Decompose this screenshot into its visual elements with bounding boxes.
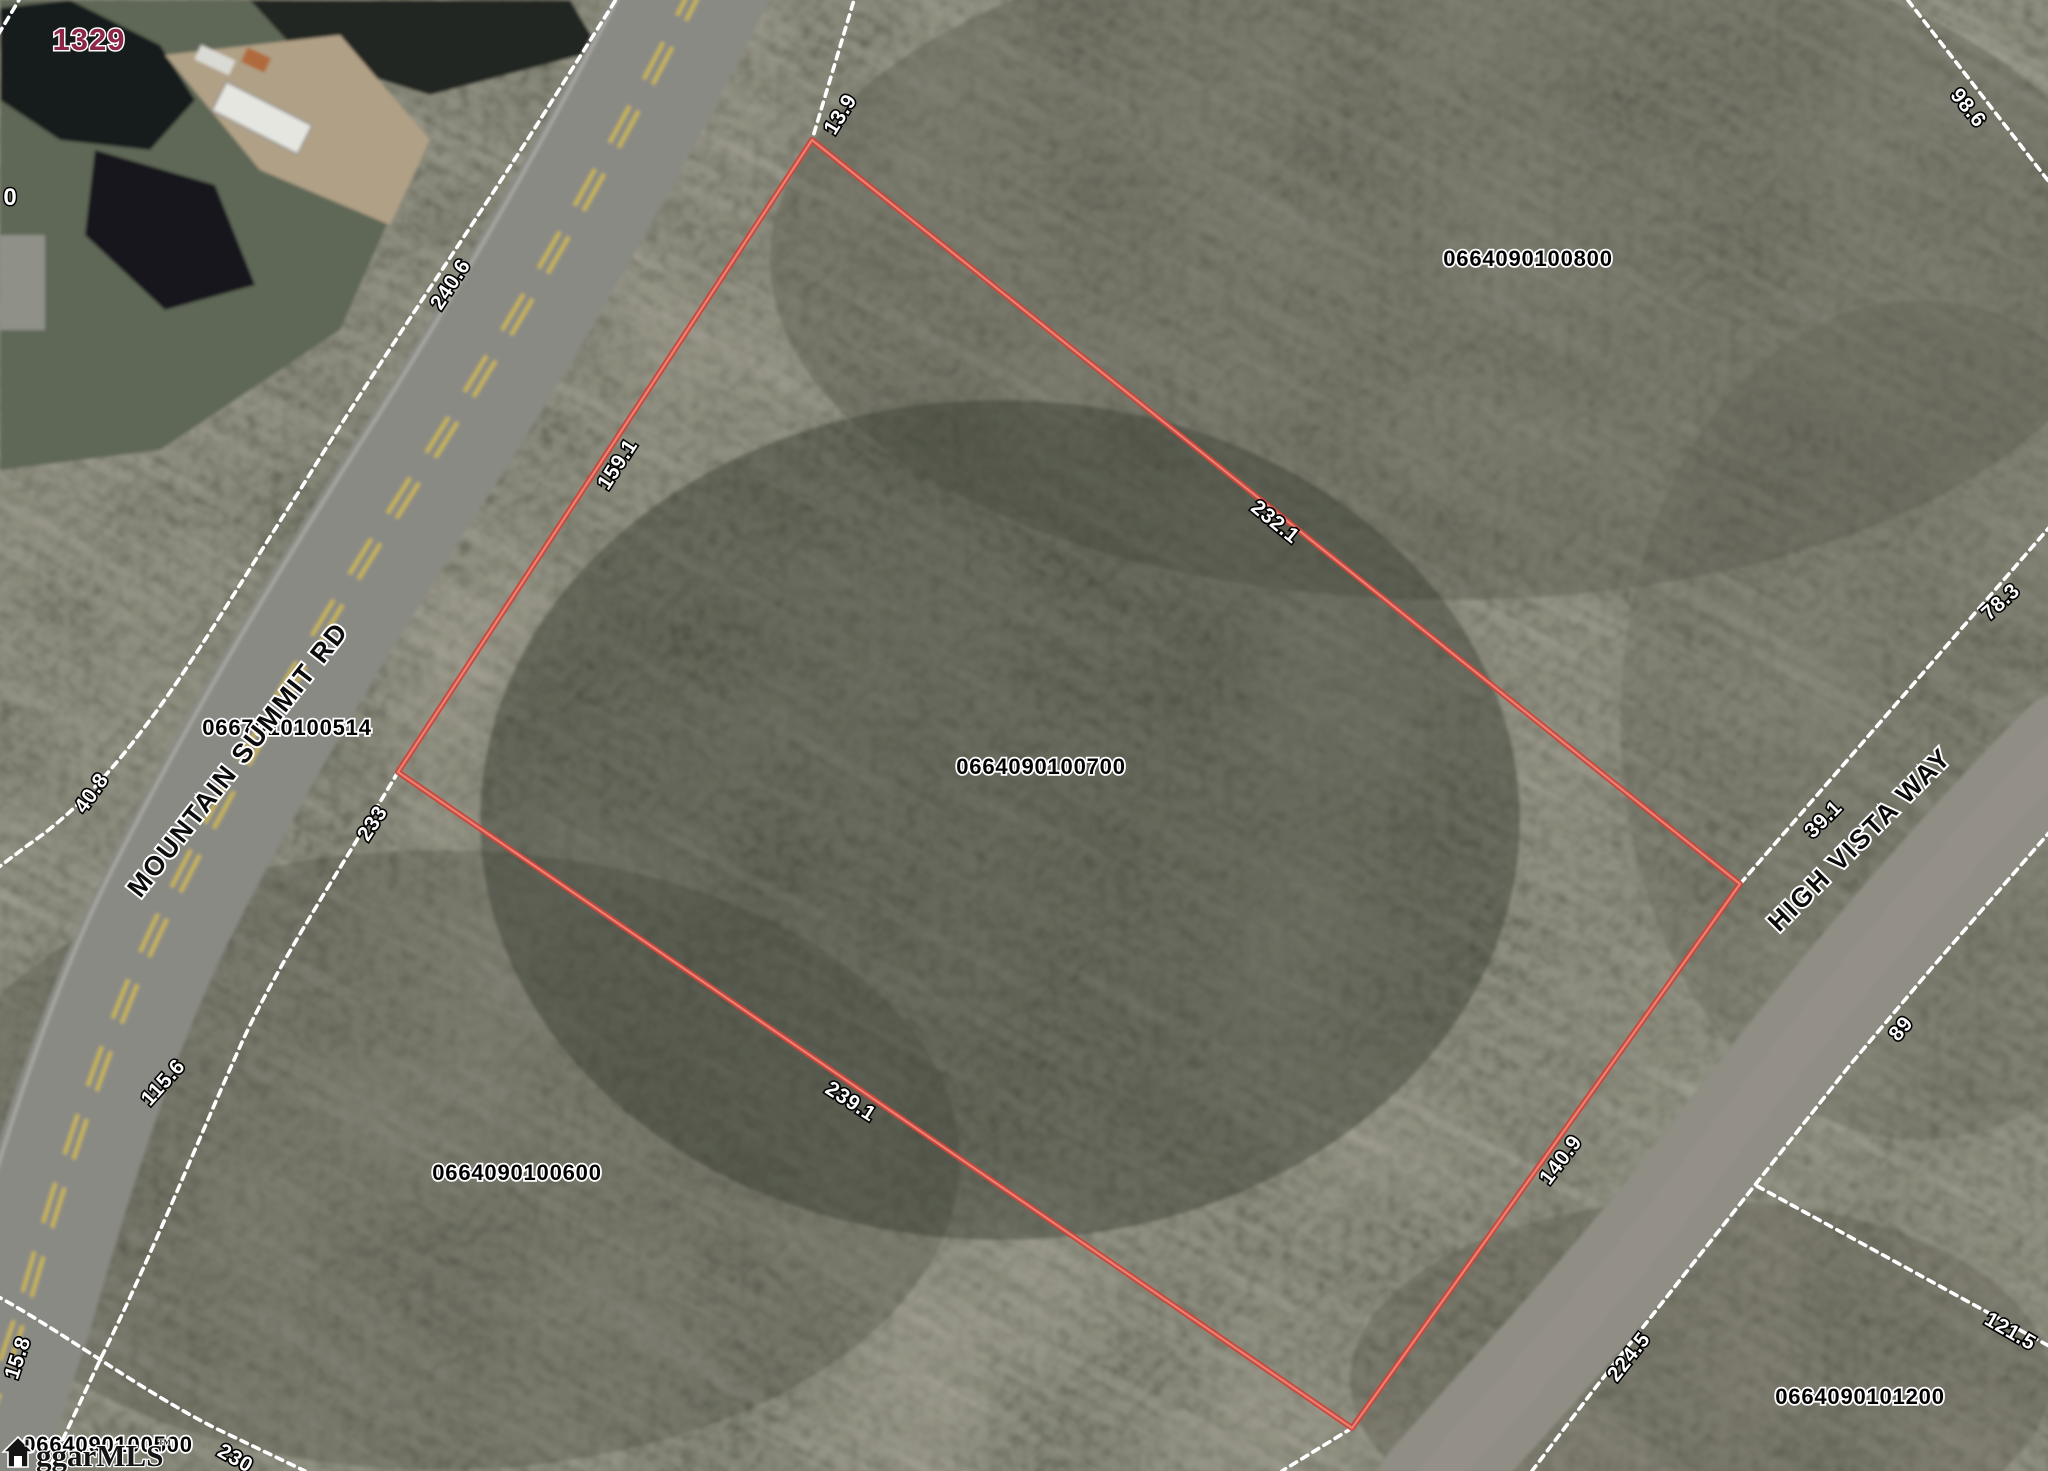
parcel-id-0664090100800: 0664090100800 [1443,246,1612,271]
parcel-map[interactable]: 1329 0 0664090100800 0664090100700 06640… [0,0,2048,1471]
parcel-id-0664090101200: 0664090101200 [1775,1384,1944,1409]
watermark-text: ggarMLS [36,1438,163,1471]
parcel-id-0664090100600: 0664090100600 [432,1160,601,1185]
mls-watermark: ggarMLS ™ [3,1436,171,1471]
watermark-tm: ™ [158,1436,171,1451]
edge-partial-parcel-label: 0 [3,184,16,211]
shed-roof [0,235,45,330]
forest-tone-center [480,400,1520,1240]
aerial-parcel-map-canvas[interactable]: 1329 0 0664090100800 0664090100700 06640… [0,0,2048,1471]
address-label: 1329 [53,22,126,57]
parcel-id-0664090100700: 0664090100700 [956,754,1125,779]
